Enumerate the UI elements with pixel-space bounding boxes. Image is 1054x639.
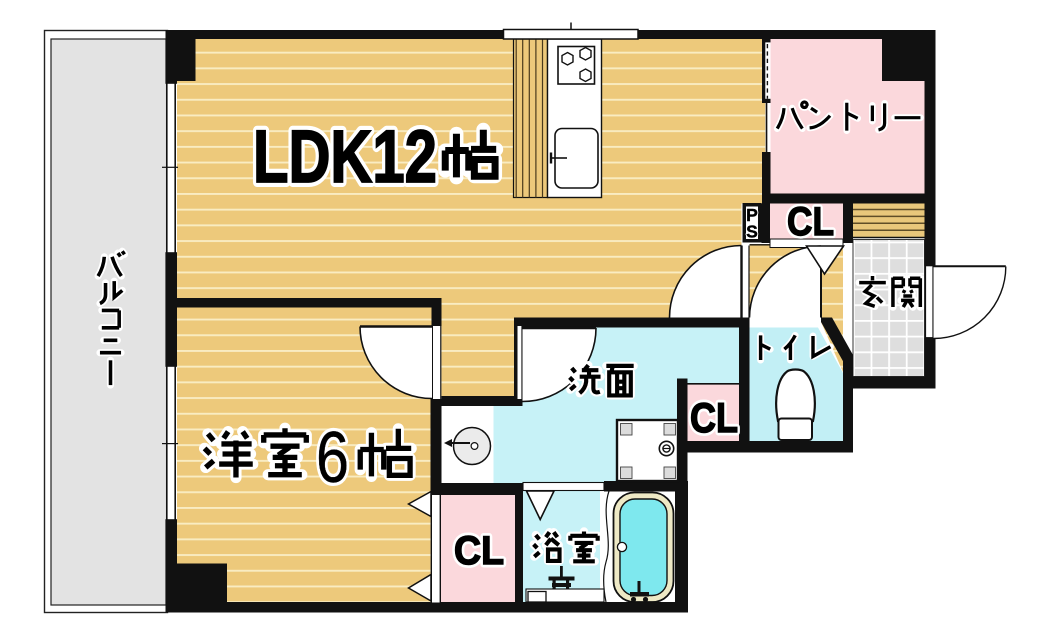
svg-text:CL: CL [454,529,504,573]
svg-text:CL: CL [787,200,834,244]
svg-text:CL: CL [690,394,738,441]
svg-text:LDK12: LDK12 [253,115,437,198]
svg-text:6: 6 [316,418,349,498]
svg-text:S: S [746,222,758,242]
